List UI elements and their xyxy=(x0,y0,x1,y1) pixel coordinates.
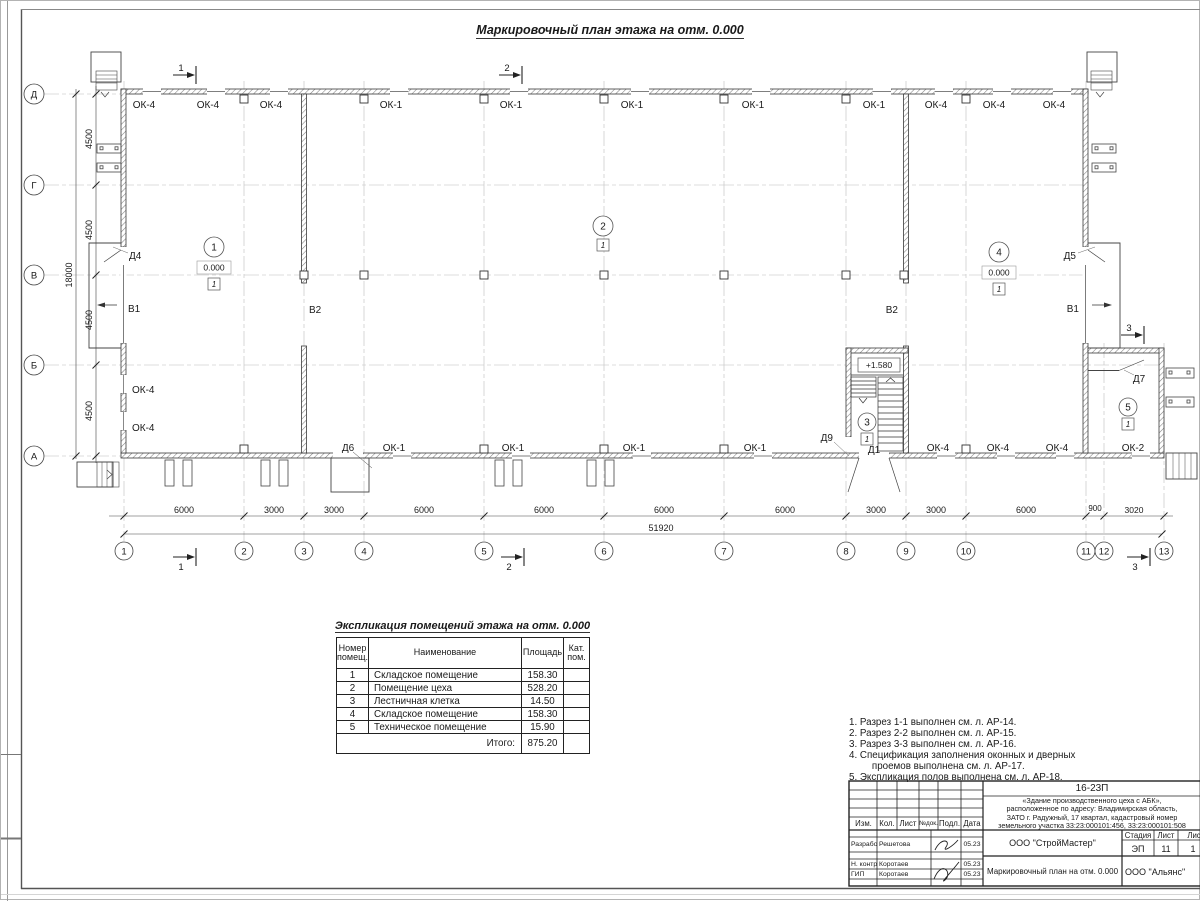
dim-label: 4500 xyxy=(84,129,94,149)
right-vestibule xyxy=(1088,243,1120,348)
door-label: Д5 xyxy=(1064,251,1077,262)
axis-markers: Д Г В Б А 1 2 3 4 5 6 7 8 9 10 11 12 13 xyxy=(24,84,1173,560)
door-label: Д1 xyxy=(868,445,881,456)
dim-label: 6000 xyxy=(414,505,434,515)
window-label: ОК-1 xyxy=(500,100,523,111)
dim-label: 900 xyxy=(1088,504,1102,513)
columns xyxy=(240,95,970,453)
room-area-cell: 528.20 xyxy=(522,682,564,695)
window-label: ОК-4 xyxy=(987,443,1010,454)
drawing-title: Маркировочный план этажа на отм. 0.000 xyxy=(476,23,743,39)
sheet-number: 11 xyxy=(1154,844,1178,854)
window-label: ОК-1 xyxy=(502,443,525,454)
tb-header-ndok: №док. xyxy=(919,820,938,827)
elevation-mark: 0.000 xyxy=(203,263,225,273)
axis-label: А xyxy=(31,452,38,463)
table-row: 4 Складское помещение 158.30 xyxy=(337,708,590,721)
note-item: 5. Экспликация полов выполнена см. л. АР… xyxy=(849,772,1085,783)
room-num-cell: 2 xyxy=(337,682,369,695)
dim-total-label: 18000 xyxy=(64,262,74,287)
room-cat-cell xyxy=(564,721,590,734)
axis-label: В xyxy=(31,271,37,282)
tb-date: 05.23 xyxy=(961,871,983,878)
window-label: ОК-4 xyxy=(132,385,155,396)
window-label: ОК-1 xyxy=(621,100,644,111)
floor-type-mark: 1 xyxy=(601,241,605,250)
tb-date: 05.23 xyxy=(961,861,983,868)
section-mark-3-bottom: 3 xyxy=(1127,548,1150,573)
room-num-cell: 5 xyxy=(337,721,369,734)
dim-label: 3000 xyxy=(324,505,344,515)
col-header-number: Номер помещ. xyxy=(337,638,369,669)
section-marks: 1 2 1 2 3 3 xyxy=(173,63,1150,573)
dimensions: 6000 3000 3000 6000 6000 6000 6000 3000 … xyxy=(64,86,1173,538)
stage-label: Стадия xyxy=(1122,831,1154,840)
window-label: ОК-4 xyxy=(983,100,1006,111)
floor-type-mark: 1 xyxy=(1126,420,1130,429)
table-row: 2 Помещение цеха 528.20 xyxy=(337,682,590,695)
room-area-cell: 15.90 xyxy=(522,721,564,734)
room-cat-cell xyxy=(564,708,590,721)
window-label: ОК-1 xyxy=(383,443,406,454)
customer-company: ООО "Альянс" xyxy=(1125,867,1200,877)
tb-date: 05.23 xyxy=(961,841,983,848)
tb-name: Коротаев xyxy=(879,861,929,868)
section-mark-1-top: 1 xyxy=(173,63,196,84)
axis-label: 11 xyxy=(1081,547,1091,558)
tb-header-list: Лист xyxy=(897,819,919,828)
room-name-cell: Помещение цеха xyxy=(369,682,522,695)
room-number: 5 xyxy=(1125,403,1131,414)
floor-type-mark: 1 xyxy=(212,280,216,289)
tb-name: Коротаев xyxy=(879,871,929,878)
room-number: 2 xyxy=(600,222,606,233)
document-title: Маркировочный план на отм. 0.000 xyxy=(983,867,1122,876)
gate-label: В1 xyxy=(1067,304,1080,315)
axis-label: 5 xyxy=(481,547,486,558)
room-markers: 1 2 3 4 5 0.000 0.000 +1.580 1 1 1 1 1 xyxy=(197,216,1137,445)
axis-label: 10 xyxy=(961,547,972,558)
note-item: 1. Разрез 1-1 выполнен см. л. АР-14. xyxy=(849,717,1085,728)
room-name-cell: Складское помещение xyxy=(369,669,522,682)
total-label-cell: Итого: xyxy=(337,734,522,754)
dim-label: 6000 xyxy=(654,505,674,515)
room-cat-cell xyxy=(564,669,590,682)
total-value-cell: 875.20 xyxy=(522,734,564,754)
section-number: 1 xyxy=(178,562,183,573)
elevation-mark: 0.000 xyxy=(988,268,1010,278)
floor-type-mark: 1 xyxy=(997,285,1001,294)
porch-arrow-icon xyxy=(101,92,109,97)
axis-label: 7 xyxy=(721,547,726,558)
window-label: ОК-4 xyxy=(132,423,155,434)
sheet-label: Лист xyxy=(1154,831,1178,840)
axis-label: Б xyxy=(31,361,37,372)
room-name-cell: Складское помещение xyxy=(369,708,522,721)
axis-label: 4 xyxy=(361,547,366,558)
dim-label: 4500 xyxy=(84,310,94,330)
drawing-title-wrap: Маркировочный план этажа на отм. 0.000 xyxy=(410,23,810,39)
axis-label: Д xyxy=(31,90,38,101)
dim-label: 6000 xyxy=(174,505,194,515)
room-number: 1 xyxy=(211,243,217,254)
signature xyxy=(934,862,959,881)
dim-label: 6000 xyxy=(534,505,554,515)
door-label: Д7 xyxy=(1133,374,1146,385)
window-label: ОК-1 xyxy=(863,100,886,111)
section-number: 2 xyxy=(506,562,511,573)
tb-header-kol: Кол. xyxy=(877,819,897,828)
window-label: ОК-4 xyxy=(927,443,950,454)
room-number: 4 xyxy=(996,248,1002,259)
signature xyxy=(935,840,958,850)
room-name-cell: Техническое помещение xyxy=(369,721,522,734)
stair-down-arrow-icon xyxy=(859,398,867,403)
room-area-cell: 14.50 xyxy=(522,695,564,708)
window-label: ОК-1 xyxy=(742,100,765,111)
tb-role: Разработал xyxy=(851,841,877,848)
window-label: ОК-1 xyxy=(623,443,646,454)
section-mark-2-bottom: 2 xyxy=(501,548,524,573)
stage-value: ЭП xyxy=(1122,844,1154,854)
section-mark-1-bottom: 1 xyxy=(173,548,196,573)
window-label: ОК-4 xyxy=(197,100,220,111)
door-label: Д6 xyxy=(342,443,355,454)
dim-label: 3020 xyxy=(1125,505,1144,515)
window-label: ОК-4 xyxy=(260,100,283,111)
section-mark-2-top: 2 xyxy=(499,63,522,84)
tb-name: Решетова xyxy=(879,841,929,848)
axis-label: 6 xyxy=(601,547,606,558)
axis-label: 12 xyxy=(1099,547,1110,558)
table-title: Экспликация помещений этажа на отм. 0.00… xyxy=(335,620,590,633)
project-code: 16-23П xyxy=(983,783,1200,794)
room-schedule-table: Номер помещ. Наименование Площадь Кат. п… xyxy=(336,637,590,754)
table-title-wrap: Экспликация помещений этажа на отм. 0.00… xyxy=(331,620,594,633)
sheets-total: 1 xyxy=(1178,844,1200,854)
section-number: 3 xyxy=(1132,562,1137,573)
project-description: «Здание производственного цеха с АБК», р… xyxy=(985,797,1199,830)
room-num-cell: 1 xyxy=(337,669,369,682)
axis-label: 3 xyxy=(301,547,306,558)
window-label: ОК-1 xyxy=(380,100,403,111)
col-header-area: Площадь xyxy=(522,638,564,669)
col-header-category: Кат. пом. xyxy=(564,638,590,669)
tb-header-izm: Изм. xyxy=(850,819,877,828)
note-item: 4. Спецификация заполнения оконных и две… xyxy=(849,750,1085,772)
designer-company: ООО "СтройМастер" xyxy=(983,838,1122,848)
window-label: ОК-4 xyxy=(925,100,948,111)
stair-up-arrow-icon xyxy=(886,378,895,382)
dim-label: 4500 xyxy=(84,220,94,240)
table-row: 3 Лестничная клетка 14.50 xyxy=(337,695,590,708)
section-number: 2 xyxy=(504,63,509,74)
room-cat-cell xyxy=(564,695,590,708)
stairwell xyxy=(851,375,903,451)
porch-arrow-icon xyxy=(1096,92,1104,97)
dim-label: 6000 xyxy=(775,505,795,515)
room-cat-cell xyxy=(564,734,590,754)
axis-label: 9 xyxy=(903,547,908,558)
note-item: 3. Разрез 3-3 выполнен см. л. АР-16. xyxy=(849,739,1085,750)
tb-role: Н. контр. xyxy=(851,861,877,868)
window-label: ОК-4 xyxy=(1046,443,1069,454)
room-name-cell: Лестничная клетка xyxy=(369,695,522,708)
dim-label: 6000 xyxy=(1016,505,1036,515)
notes-list: 1. Разрез 1-1 выполнен см. л. АР-14. 2. … xyxy=(849,717,1085,783)
window-label: ОК-1 xyxy=(744,443,767,454)
room-num-cell: 4 xyxy=(337,708,369,721)
room-area-cell: 158.30 xyxy=(522,669,564,682)
room-area-cell: 158.30 xyxy=(522,708,564,721)
axis-label: 8 xyxy=(843,547,848,558)
note-item: 2. Разрез 2-2 выполнен см. л. АР-15. xyxy=(849,728,1085,739)
window-label: ОК-2 xyxy=(1122,443,1145,454)
tb-header-data: Дата xyxy=(961,819,983,828)
dim-label: 3000 xyxy=(866,505,886,515)
gate-label: В2 xyxy=(309,305,322,316)
axis-label: 13 xyxy=(1159,547,1170,558)
door-label: Д9 xyxy=(821,433,834,444)
section-number: 3 xyxy=(1126,323,1131,334)
col-header-name: Наименование xyxy=(369,638,522,669)
axis-label: 2 xyxy=(241,547,246,558)
dim-total-label: 51920 xyxy=(648,523,673,533)
gate-label: В1 xyxy=(128,304,141,315)
window-label: ОК-4 xyxy=(1043,100,1066,111)
room-cat-cell xyxy=(564,682,590,695)
porch-arrow-icon xyxy=(107,470,112,479)
table-row: 5 Техническое помещение 15.90 xyxy=(337,721,590,734)
floor-type-mark: 1 xyxy=(865,435,869,444)
section-mark-3-right: 3 xyxy=(1121,323,1144,344)
sheets-label: Листов xyxy=(1178,831,1200,840)
table-total-row: Итого: 875.20 xyxy=(337,734,590,754)
axis-label: Г xyxy=(31,181,36,192)
left-vestibule xyxy=(89,243,121,348)
dim-label: 4500 xyxy=(84,401,94,421)
stair-elevation-mark: +1.580 xyxy=(866,360,893,370)
tb-header-podl: Подл. xyxy=(938,819,961,828)
room-number: 3 xyxy=(864,418,870,429)
window-label: ОК-4 xyxy=(133,100,156,111)
drawing-sheet: 6000 3000 3000 6000 6000 6000 6000 3000 … xyxy=(0,0,1200,900)
table-row: 1 Складское помещение 158.30 xyxy=(337,669,590,682)
porches-and-docks xyxy=(77,52,1197,492)
door-label: Д4 xyxy=(129,251,142,262)
axis-label: 1 xyxy=(121,547,126,558)
axis-grid-lines xyxy=(44,81,1164,541)
dim-label: 3000 xyxy=(926,505,946,515)
room-num-cell: 3 xyxy=(337,695,369,708)
dim-label: 3000 xyxy=(264,505,284,515)
section-number: 1 xyxy=(178,63,183,74)
gate-label: В2 xyxy=(886,305,899,316)
tb-role: ГИП xyxy=(851,871,877,878)
